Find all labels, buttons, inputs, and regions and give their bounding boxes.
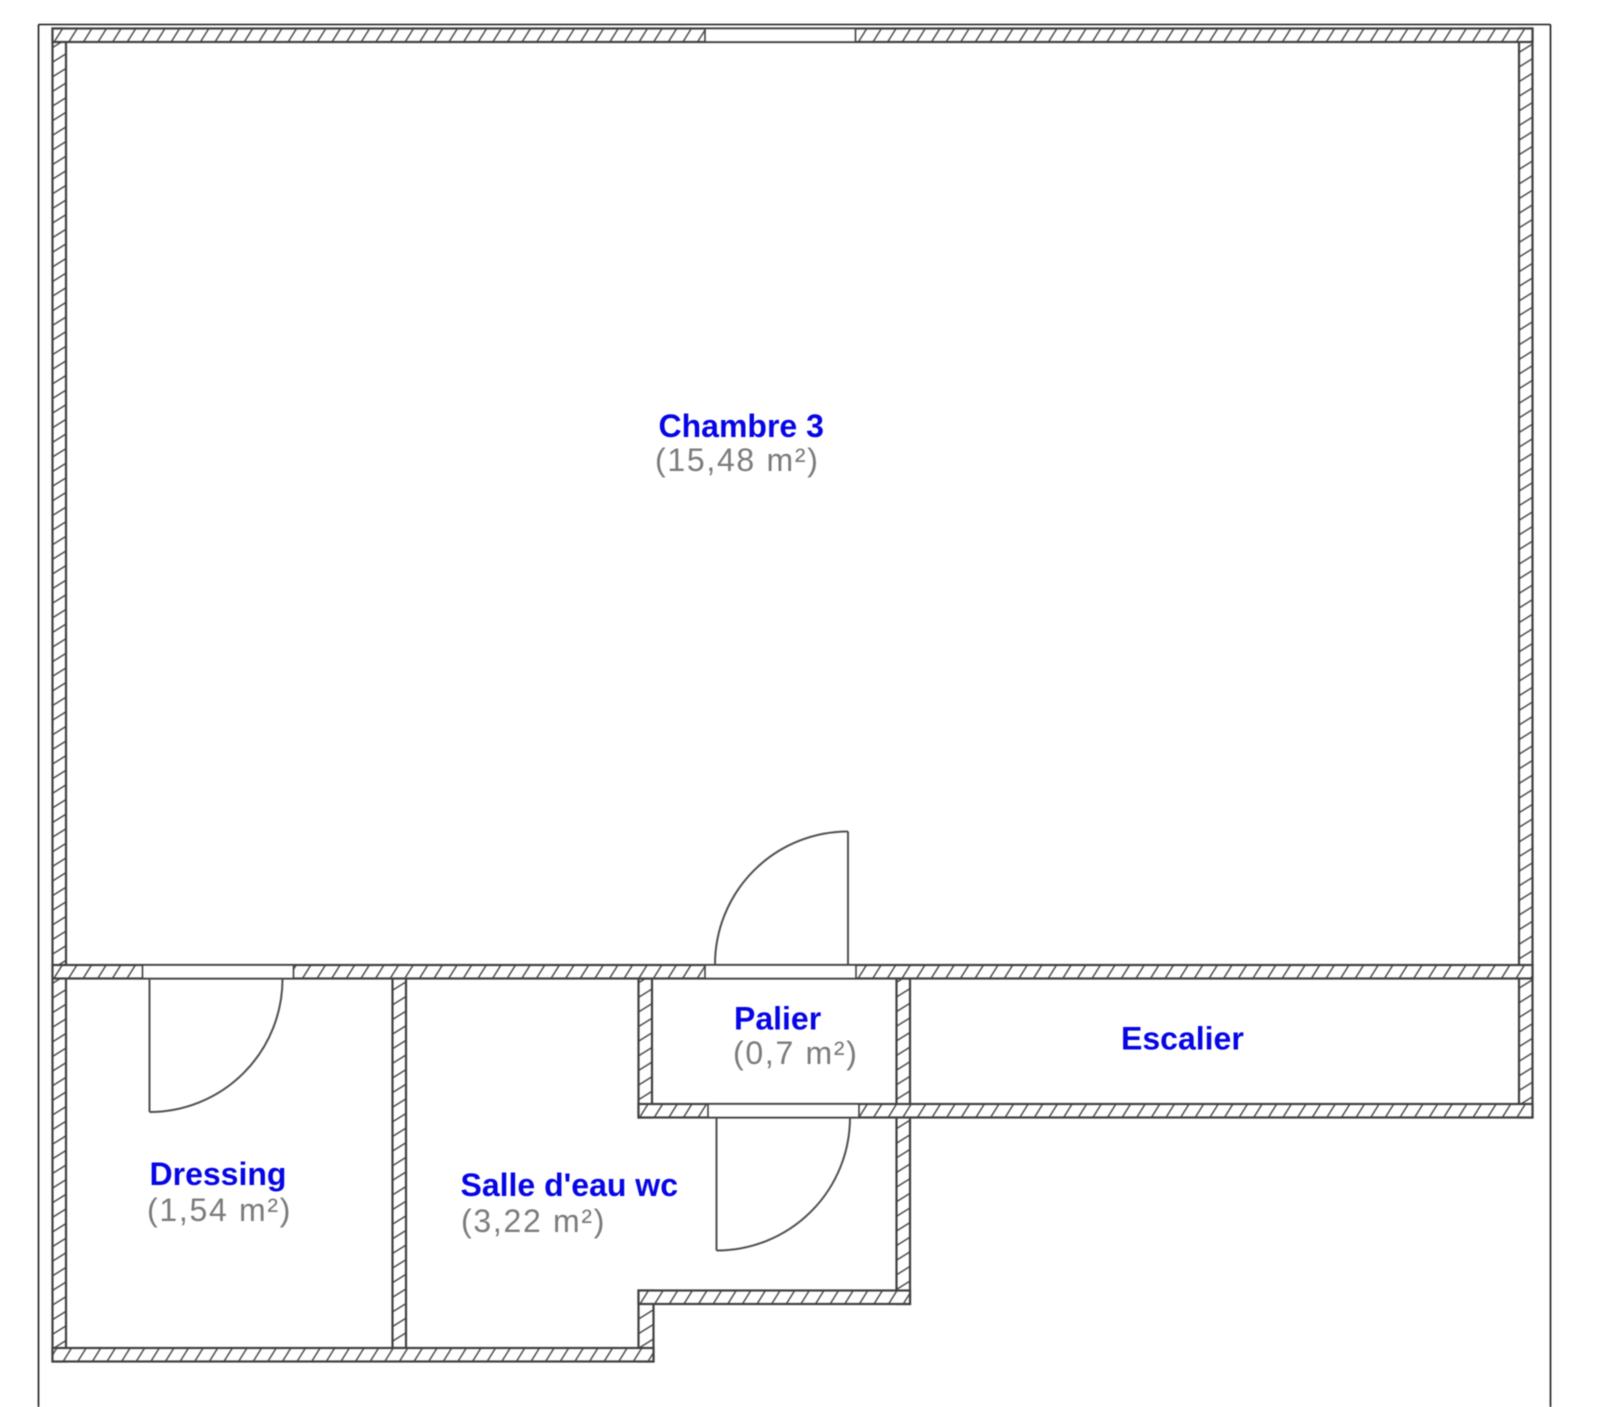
svg-text:(15,48 m²): (15,48 m²) [655,442,820,478]
svg-text:(0,7 m²): (0,7 m²) [733,1035,859,1071]
svg-text:Escalier: Escalier [1121,1021,1244,1057]
svg-text:Palier: Palier [734,1001,821,1037]
svg-text:Salle d'eau wc: Salle d'eau wc [461,1167,678,1203]
svg-text:Chambre 3: Chambre 3 [659,408,824,444]
svg-text:(3,22 m²): (3,22 m²) [461,1203,606,1239]
svg-text:Dressing: Dressing [150,1156,287,1192]
svg-text:(1,54 m²): (1,54 m²) [147,1192,292,1228]
